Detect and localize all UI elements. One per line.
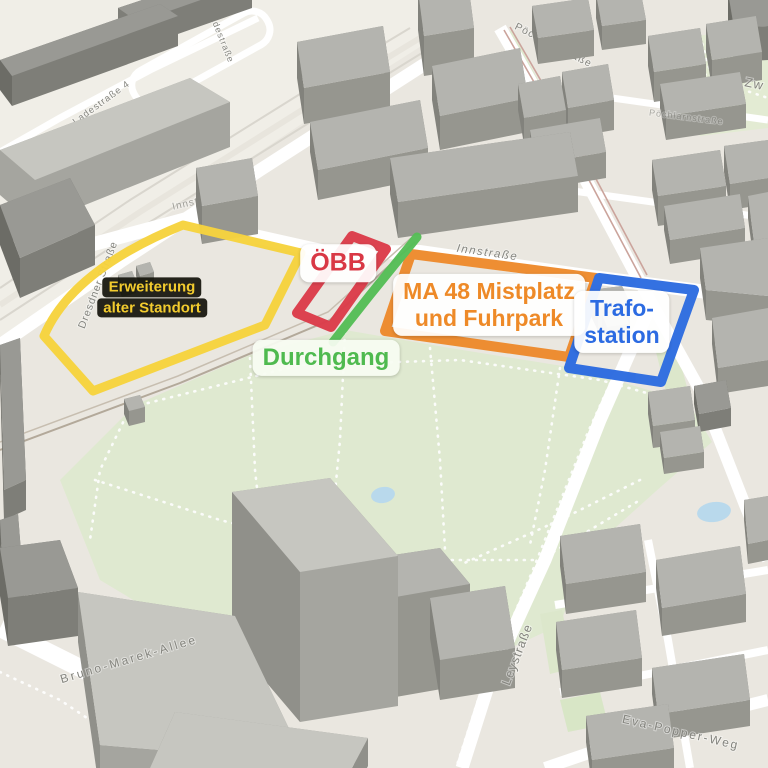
building bbox=[744, 496, 768, 564]
annotation-label-erweiterung: Erweiterung alter Standort bbox=[97, 277, 207, 318]
annotation-label-durchgang: Durchgang bbox=[253, 340, 400, 376]
annotation-label-trafo-line2: station bbox=[584, 322, 659, 349]
building bbox=[432, 48, 528, 150]
building bbox=[532, 0, 594, 64]
building bbox=[560, 524, 646, 614]
annotation-label-trafo-line1: Trafo- bbox=[584, 295, 659, 322]
annotation-label-ma48: MA 48 Mistplatz und Fuhrpark bbox=[393, 274, 585, 336]
map-svg: Ladestraße 4 Ladestraße Innstraße Pöchla… bbox=[0, 0, 768, 768]
annotation-label-oebb: ÖBB bbox=[300, 244, 376, 282]
annotation-label-ma48-line2: und Fuhrpark bbox=[403, 305, 575, 332]
building bbox=[596, 0, 646, 50]
building bbox=[660, 426, 704, 474]
building bbox=[660, 72, 746, 140]
building bbox=[124, 395, 145, 426]
annotation-label-erweiterung-line2: alter Standort bbox=[97, 298, 207, 318]
annotation-label-ma48-line1: MA 48 Mistplatz bbox=[403, 278, 575, 305]
building bbox=[556, 610, 642, 698]
annotation-label-trafo: Trafo- station bbox=[574, 291, 669, 353]
building bbox=[656, 546, 746, 636]
building bbox=[694, 380, 731, 432]
annotation-label-erweiterung-line1: Erweiterung bbox=[103, 277, 202, 297]
map-canvas[interactable]: Ladestraße 4 Ladestraße Innstraße Pöchla… bbox=[0, 0, 768, 768]
